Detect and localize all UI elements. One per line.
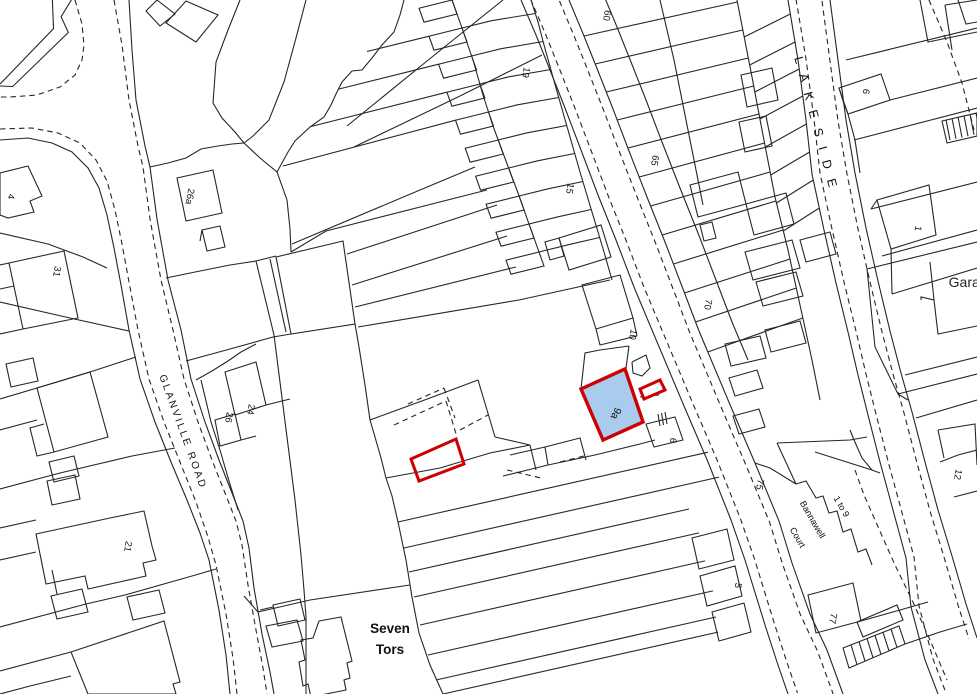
svg-text:24: 24 (244, 403, 257, 415)
svg-text:77: 77 (826, 612, 839, 624)
svg-text:12: 12 (951, 468, 964, 480)
svg-text:10: 10 (626, 328, 639, 340)
svg-text:Garage: Garage (949, 274, 977, 290)
svg-text:65: 65 (648, 154, 661, 166)
svg-text:70: 70 (701, 298, 714, 310)
svg-text:21: 21 (121, 540, 134, 552)
svg-text:Tors: Tors (376, 642, 404, 657)
svg-text:26: 26 (222, 411, 235, 423)
svg-text:15: 15 (563, 182, 576, 194)
svg-text:75: 75 (753, 478, 766, 490)
svg-text:31: 31 (50, 265, 63, 277)
svg-text:60: 60 (600, 9, 613, 21)
svg-text:Seven: Seven (370, 621, 410, 636)
svg-text:19: 19 (519, 66, 532, 78)
